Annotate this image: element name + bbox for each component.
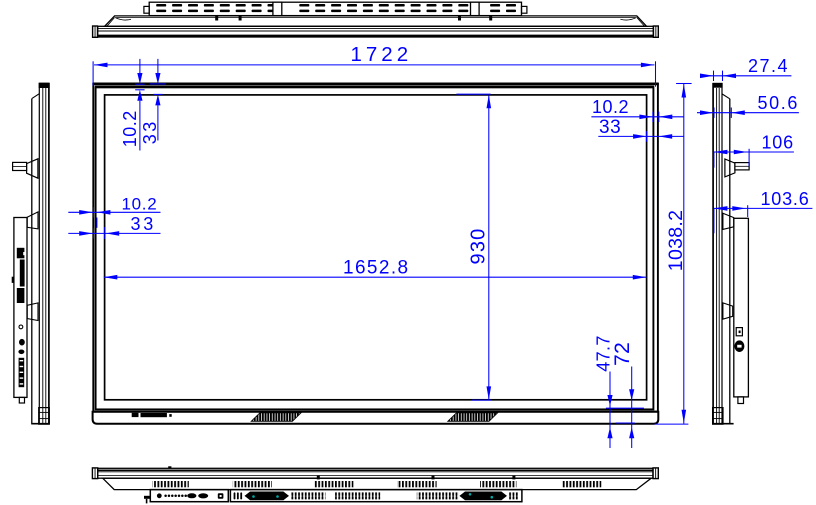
svg-text:10.2: 10.2 — [120, 110, 140, 147]
svg-text:106: 106 — [762, 132, 794, 152]
svg-text:33: 33 — [599, 117, 621, 138]
svg-text:33: 33 — [140, 119, 160, 144]
svg-text:930: 930 — [468, 228, 490, 265]
svg-text:33: 33 — [131, 214, 157, 234]
svg-text:1038.2: 1038.2 — [665, 210, 687, 271]
svg-text:1722: 1722 — [351, 43, 413, 66]
svg-text:10.2: 10.2 — [122, 195, 158, 214]
svg-text:1652.8: 1652.8 — [343, 257, 410, 278]
svg-text:27.4: 27.4 — [748, 56, 789, 76]
svg-text:103.6: 103.6 — [761, 189, 810, 209]
svg-text:10.2: 10.2 — [592, 97, 629, 117]
svg-text:72: 72 — [611, 342, 634, 366]
svg-text:50.6: 50.6 — [758, 93, 799, 113]
